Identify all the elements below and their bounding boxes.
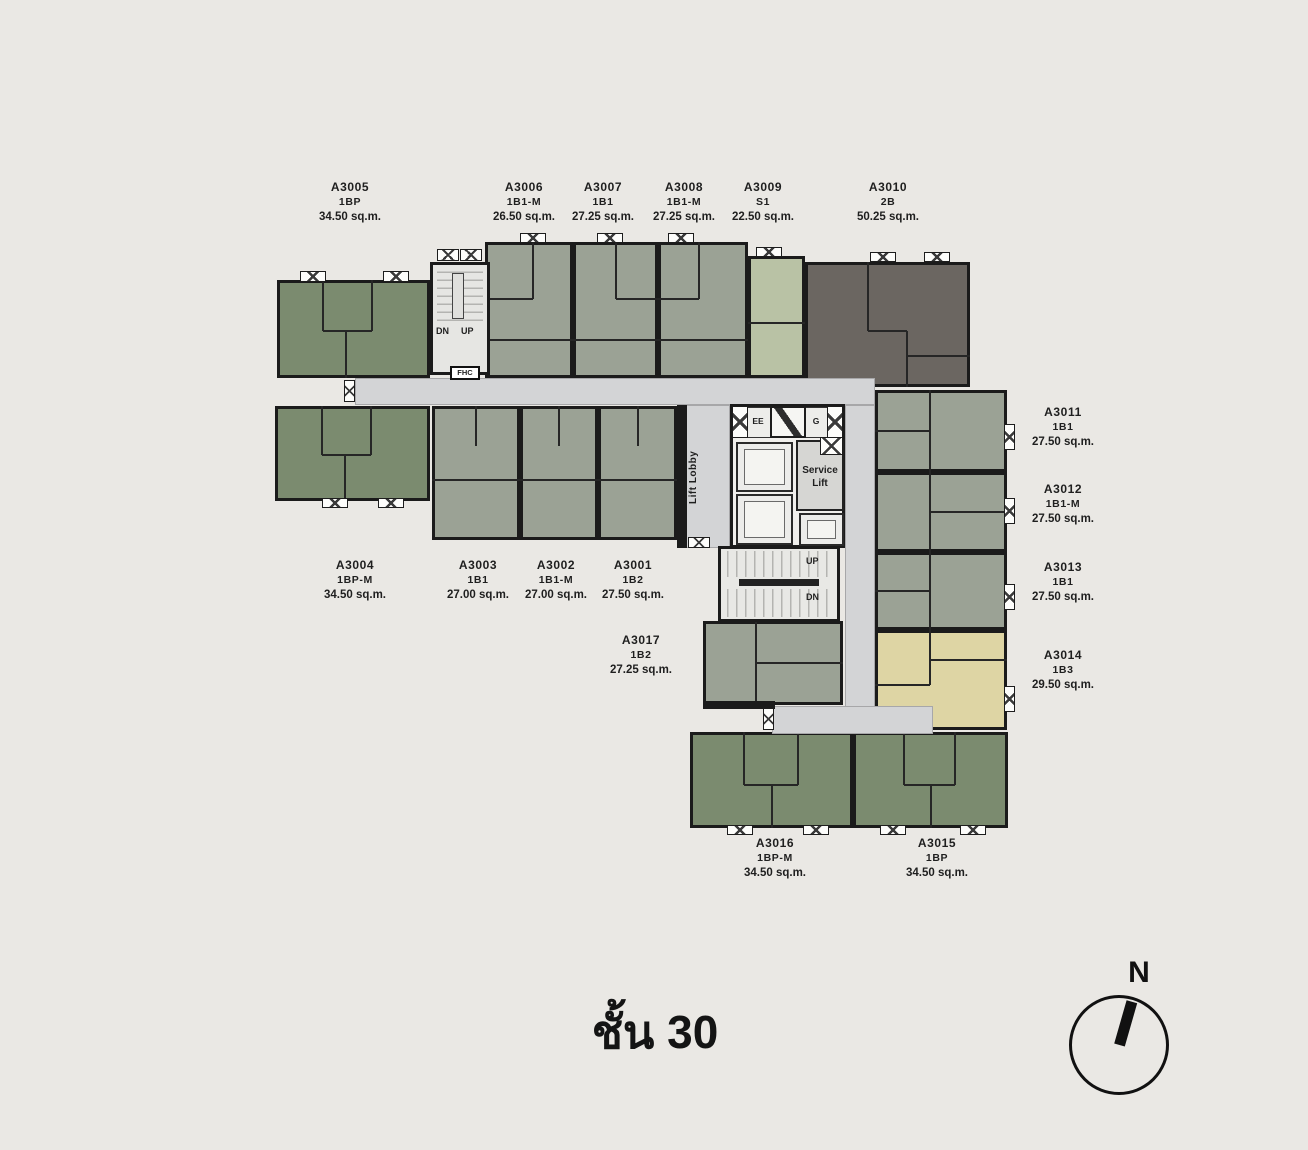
unit-type-text: 1B1-M — [998, 497, 1128, 511]
interior-wall — [532, 242, 534, 299]
unit-name-text: A3005 — [285, 180, 415, 194]
unit-a3008 — [658, 242, 748, 378]
interior-wall — [345, 331, 347, 378]
window-marker-icon — [688, 537, 710, 548]
window-marker-icon — [870, 252, 896, 262]
interior-wall — [371, 280, 373, 331]
unit-name-text: A3015 — [872, 836, 1002, 850]
interior-wall — [616, 298, 659, 300]
unit-name-text: A3003 — [413, 558, 543, 572]
interior-wall — [344, 455, 346, 501]
window-marker-icon — [924, 252, 950, 262]
compass-needle-icon — [1114, 1000, 1137, 1046]
stair-rail — [452, 273, 464, 319]
interior-wall — [929, 630, 931, 685]
interior-wall — [867, 262, 869, 331]
interior-wall — [573, 339, 658, 341]
lift-shaft — [736, 442, 793, 492]
unit-area-text: 27.50 sq.m. — [998, 435, 1128, 449]
unit-name-text: A3004 — [290, 558, 420, 572]
interior-wall — [658, 298, 699, 300]
interior-wall — [637, 406, 639, 446]
window-marker-icon — [727, 825, 753, 835]
interior-wall — [370, 406, 372, 455]
unit-area-text: 27.50 sq.m. — [998, 512, 1128, 526]
interior-wall — [930, 659, 1007, 661]
stair-dn-label: DN — [806, 592, 828, 602]
wall — [677, 405, 687, 548]
unit-label-a3003: A30031B127.00 sq.m. — [413, 558, 543, 602]
unit-type-text: 1BP-M — [710, 851, 840, 865]
unit-type-text: S1 — [698, 195, 828, 209]
stair-up-label: UP — [806, 556, 828, 566]
unit-name-text: A3012 — [998, 482, 1128, 496]
unit-type-text: 1BP — [285, 195, 415, 209]
stair-up-label: UP — [461, 326, 483, 336]
interior-wall — [322, 454, 372, 456]
interior-wall — [903, 732, 905, 785]
shaft-x-icon — [820, 437, 843, 455]
duct-shaft — [770, 406, 806, 438]
unit-label-a3009: A3009S122.50 sq.m. — [698, 180, 828, 224]
interior-wall — [698, 242, 700, 299]
interior-wall — [323, 330, 372, 332]
lift-car — [744, 501, 785, 538]
interior-wall — [558, 406, 560, 446]
interior-wall — [748, 322, 805, 324]
interior-wall — [658, 339, 748, 341]
window-marker-icon — [520, 233, 546, 243]
interior-wall — [875, 430, 930, 432]
interior-wall — [930, 785, 932, 828]
window-marker-icon — [763, 708, 774, 730]
g-room-label: G — [806, 416, 826, 426]
interior-wall — [322, 280, 324, 331]
lift-shaft — [736, 494, 793, 545]
unit-area-text: 34.50 sq.m. — [872, 866, 1002, 880]
interior-wall — [743, 732, 745, 785]
window-marker-icon — [437, 249, 459, 261]
lift-car — [744, 449, 785, 485]
unit-name-text: A3017 — [576, 633, 706, 647]
interior-wall — [615, 242, 617, 299]
unit-label-a3011: A30111B127.50 sq.m. — [998, 405, 1128, 449]
interior-wall — [598, 479, 677, 481]
north-label: N — [1119, 956, 1159, 990]
window-marker-icon — [960, 825, 986, 835]
lift-car — [807, 520, 836, 539]
unit-area-text: 34.50 sq.m. — [290, 588, 420, 602]
unit-label-a3013: A30131B127.50 sq.m. — [998, 560, 1128, 604]
window-marker-icon — [383, 271, 409, 282]
interior-wall — [475, 406, 477, 446]
unit-type-text: 2B — [823, 195, 953, 209]
interior-wall — [756, 662, 843, 664]
window-marker-icon — [803, 825, 829, 835]
unit-label-a3016: A30161BP-M34.50 sq.m. — [710, 836, 840, 880]
unit-area-text: 22.50 sq.m. — [698, 210, 828, 224]
unit-name-text: A3013 — [998, 560, 1128, 574]
unit-type-text: 1B1 — [998, 420, 1128, 434]
window-marker-icon — [378, 498, 404, 508]
interior-wall — [485, 298, 533, 300]
interior-wall — [930, 511, 1007, 513]
interior-wall — [432, 479, 520, 481]
interior-wall — [875, 590, 930, 592]
unit-area-text: 27.25 sq.m. — [576, 663, 706, 677]
unit-label-a3010: A30102B50.25 sq.m. — [823, 180, 953, 224]
interior-wall — [875, 684, 930, 686]
unit-area-text: 34.50 sq.m. — [710, 866, 840, 880]
window-marker-icon — [460, 249, 482, 261]
unit-type-text: 1BP — [872, 851, 1002, 865]
interior-wall — [868, 330, 908, 332]
unit-a3009 — [748, 256, 805, 378]
window-marker-icon — [344, 380, 355, 402]
unit-label-a3015: A30151BP34.50 sq.m. — [872, 836, 1002, 880]
stair-landing — [739, 579, 819, 586]
unit-name-text: A3010 — [823, 180, 953, 194]
unit-type-text: 1B1 — [998, 575, 1128, 589]
unit-area-text: 27.00 sq.m. — [413, 588, 543, 602]
interior-wall — [797, 732, 799, 785]
lift-lobby-label: Lift Lobby — [688, 430, 706, 524]
window-marker-icon — [322, 498, 348, 508]
unit-label-a3005: A30051BP34.50 sq.m. — [285, 180, 415, 224]
corridor — [355, 378, 875, 405]
unit-a3010 — [805, 262, 970, 387]
unit-label-a3012: A30121B1-M27.50 sq.m. — [998, 482, 1128, 526]
window-marker-icon — [300, 271, 326, 282]
unit-name-text: A3014 — [998, 648, 1128, 662]
unit-area-text: 27.50 sq.m. — [998, 590, 1128, 604]
window-marker-icon — [756, 247, 782, 257]
unit-type-text: 1B1 — [413, 573, 543, 587]
stair-dn-label: DN — [436, 326, 458, 336]
interior-wall — [321, 406, 323, 455]
unit-area-text: 50.25 sq.m. — [823, 210, 953, 224]
unit-label-a3014: A30141B329.50 sq.m. — [998, 648, 1128, 692]
window-marker-icon — [880, 825, 906, 835]
unit-name-text: A3009 — [698, 180, 828, 194]
unit-label-a3004: A30041BP-M34.50 sq.m. — [290, 558, 420, 602]
interior-wall — [520, 479, 598, 481]
interior-wall — [906, 331, 908, 387]
unit-type-text: 1B2 — [576, 648, 706, 662]
unit-label-a3017: A30171B227.25 sq.m. — [576, 633, 706, 677]
compass-icon — [1069, 995, 1169, 1095]
lift-shaft — [799, 513, 844, 546]
window-marker-icon — [597, 233, 623, 243]
floor-plan: EE G Service Lift UP DN DN UP FHC Lift L… — [0, 0, 1308, 1150]
unit-type-text: 1BP-M — [290, 573, 420, 587]
unit-name-text: A3011 — [998, 405, 1128, 419]
interior-wall — [954, 732, 956, 785]
interior-wall — [485, 339, 573, 341]
interior-wall — [907, 355, 970, 357]
fire-hose-cabinet: FHC — [450, 366, 480, 380]
unit-a3006 — [485, 242, 573, 378]
window-marker-icon — [668, 233, 694, 243]
ee-room-label: EE — [746, 416, 770, 426]
unit-name-text: A3016 — [710, 836, 840, 850]
corridor — [845, 405, 875, 734]
unit-area-text: 34.50 sq.m. — [285, 210, 415, 224]
unit-area-text: 29.50 sq.m. — [998, 678, 1128, 692]
shaft-x-icon — [827, 406, 843, 438]
corridor — [772, 706, 933, 734]
floor-title: ชั้น 30 — [470, 996, 840, 1069]
interior-wall — [771, 785, 773, 828]
unit-type-text: 1B3 — [998, 663, 1128, 677]
